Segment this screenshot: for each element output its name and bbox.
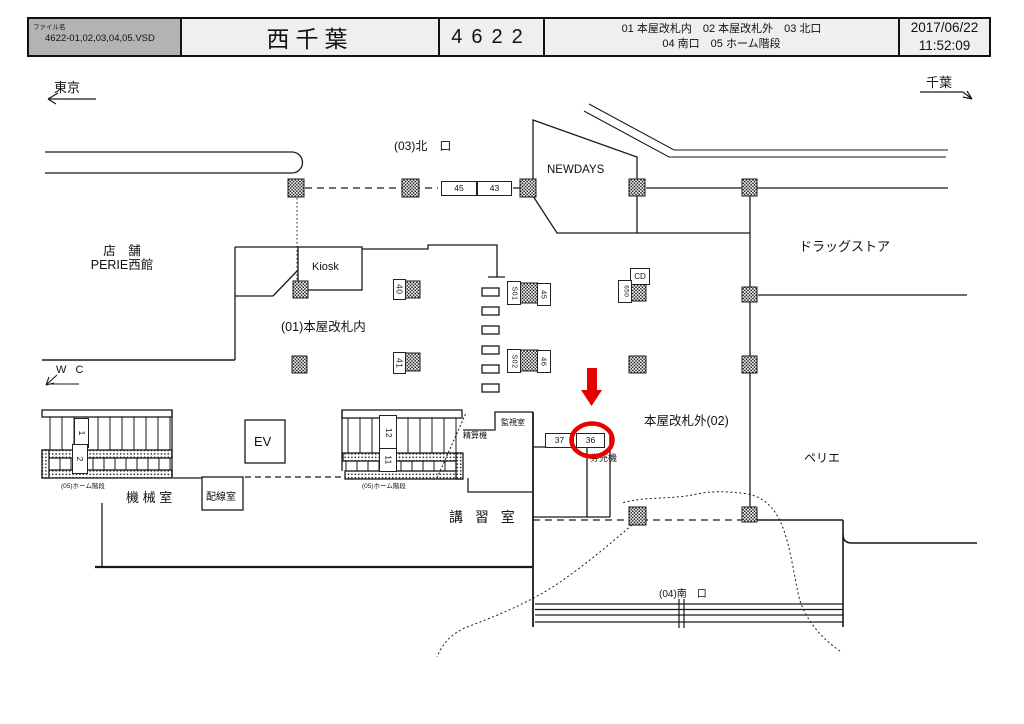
file-label: ファイル名	[33, 21, 66, 31]
file-name: 4622-01,02,03,04,05.VSD	[45, 33, 155, 44]
label-monitor-room: 監視室	[501, 417, 525, 428]
sign-40: 40	[395, 284, 404, 294]
label-kiosk: Kiosk	[312, 261, 339, 273]
sign-46: 46	[540, 357, 548, 366]
north-stairs-lines	[584, 104, 948, 157]
sign-43: 43	[477, 181, 512, 196]
label-wiring-room: 配線室	[206, 488, 236, 503]
time: 11:52:09	[919, 37, 971, 55]
lecture-room-outline	[468, 478, 533, 492]
sign-37: 37	[545, 433, 574, 448]
date: 2017/06/22	[911, 19, 979, 37]
label-fare-adjust: 精算機	[463, 430, 487, 441]
west-wall	[45, 152, 303, 173]
walls	[42, 91, 977, 657]
station-code: 4622	[440, 19, 545, 55]
sign-36: 36	[576, 433, 605, 448]
sign-650: 650	[622, 285, 629, 297]
sheet-index: 01 本屋改札内 02 本屋改札外 03 北口 04 南口 05 ホーム階段	[545, 19, 900, 55]
wc-arrow-icon	[46, 375, 79, 385]
sign-cd: CD	[630, 268, 650, 285]
label-inside-gate: (01)本屋改札内	[281, 316, 366, 335]
label-outside-gate: 本屋改札外(02)	[644, 410, 729, 429]
sheet-index-line2: 04 南口 05 ホーム階段	[662, 37, 780, 52]
label-perie: ペリエ	[804, 449, 840, 466]
sign-s02: S02	[511, 354, 518, 368]
timestamp: 2017/06/22 11:52:09	[900, 19, 989, 55]
station-name: 西千葉	[182, 19, 440, 55]
label-machine-room: 機 械 室	[126, 487, 172, 506]
title-block: ファイル名 4622-01,02,03,04,05.VSD 西千葉 4622 0…	[27, 17, 991, 57]
title-block-file-cell: ファイル名 4622-01,02,03,04,05.VSD	[29, 19, 182, 55]
sign-stair-1: 1	[77, 430, 86, 435]
sign-stair-11: 11	[384, 455, 392, 464]
label-north-gate: (03)北 口	[394, 137, 451, 154]
label-drugstore: ドラッグストア	[799, 236, 890, 255]
chiba-arrow-icon	[920, 91, 972, 99]
stairs-left	[42, 410, 172, 478]
station-layout-page: ファイル名 4622-01,02,03,04,05.VSD 西千葉 4622 0…	[0, 0, 1024, 724]
label-shop-line1: 店 舗	[62, 244, 182, 258]
ticket-gates	[482, 288, 499, 392]
label-stairs-mid: (05)ホーム階段	[362, 480, 406, 490]
sheet-index-line1: 01 本屋改札内 02 本屋改札外 03 北口	[622, 22, 822, 37]
label-ev: EV	[254, 434, 271, 449]
label-lecture-room: 講 習 室	[449, 507, 519, 527]
direction-chiba: 千葉	[926, 72, 952, 91]
direction-tokyo: 東京	[54, 77, 80, 96]
label-wc: W C	[56, 364, 86, 376]
label-newdays: NEWDAYS	[547, 164, 604, 176]
south-gate-fence	[535, 599, 843, 628]
sign-stair-12: 12	[384, 428, 392, 438]
stairs-middle	[342, 410, 466, 479]
sign-s01: S01	[511, 286, 518, 300]
label-shop: 店 舗 PERIE西館	[62, 244, 182, 273]
newdays-outline	[533, 120, 637, 233]
sign-45: 45	[441, 181, 477, 196]
label-south-gate: (04)南 口	[659, 585, 707, 600]
label-stairs-left: (05)ホーム階段	[61, 480, 105, 490]
sign-41: 41	[395, 358, 404, 368]
label-shop-line2: PERIE西館	[62, 258, 182, 272]
sign-stair-2: 2	[76, 456, 85, 461]
label-ticket-machine: 券売機	[590, 452, 603, 465]
sign-45b: 45	[540, 290, 548, 299]
